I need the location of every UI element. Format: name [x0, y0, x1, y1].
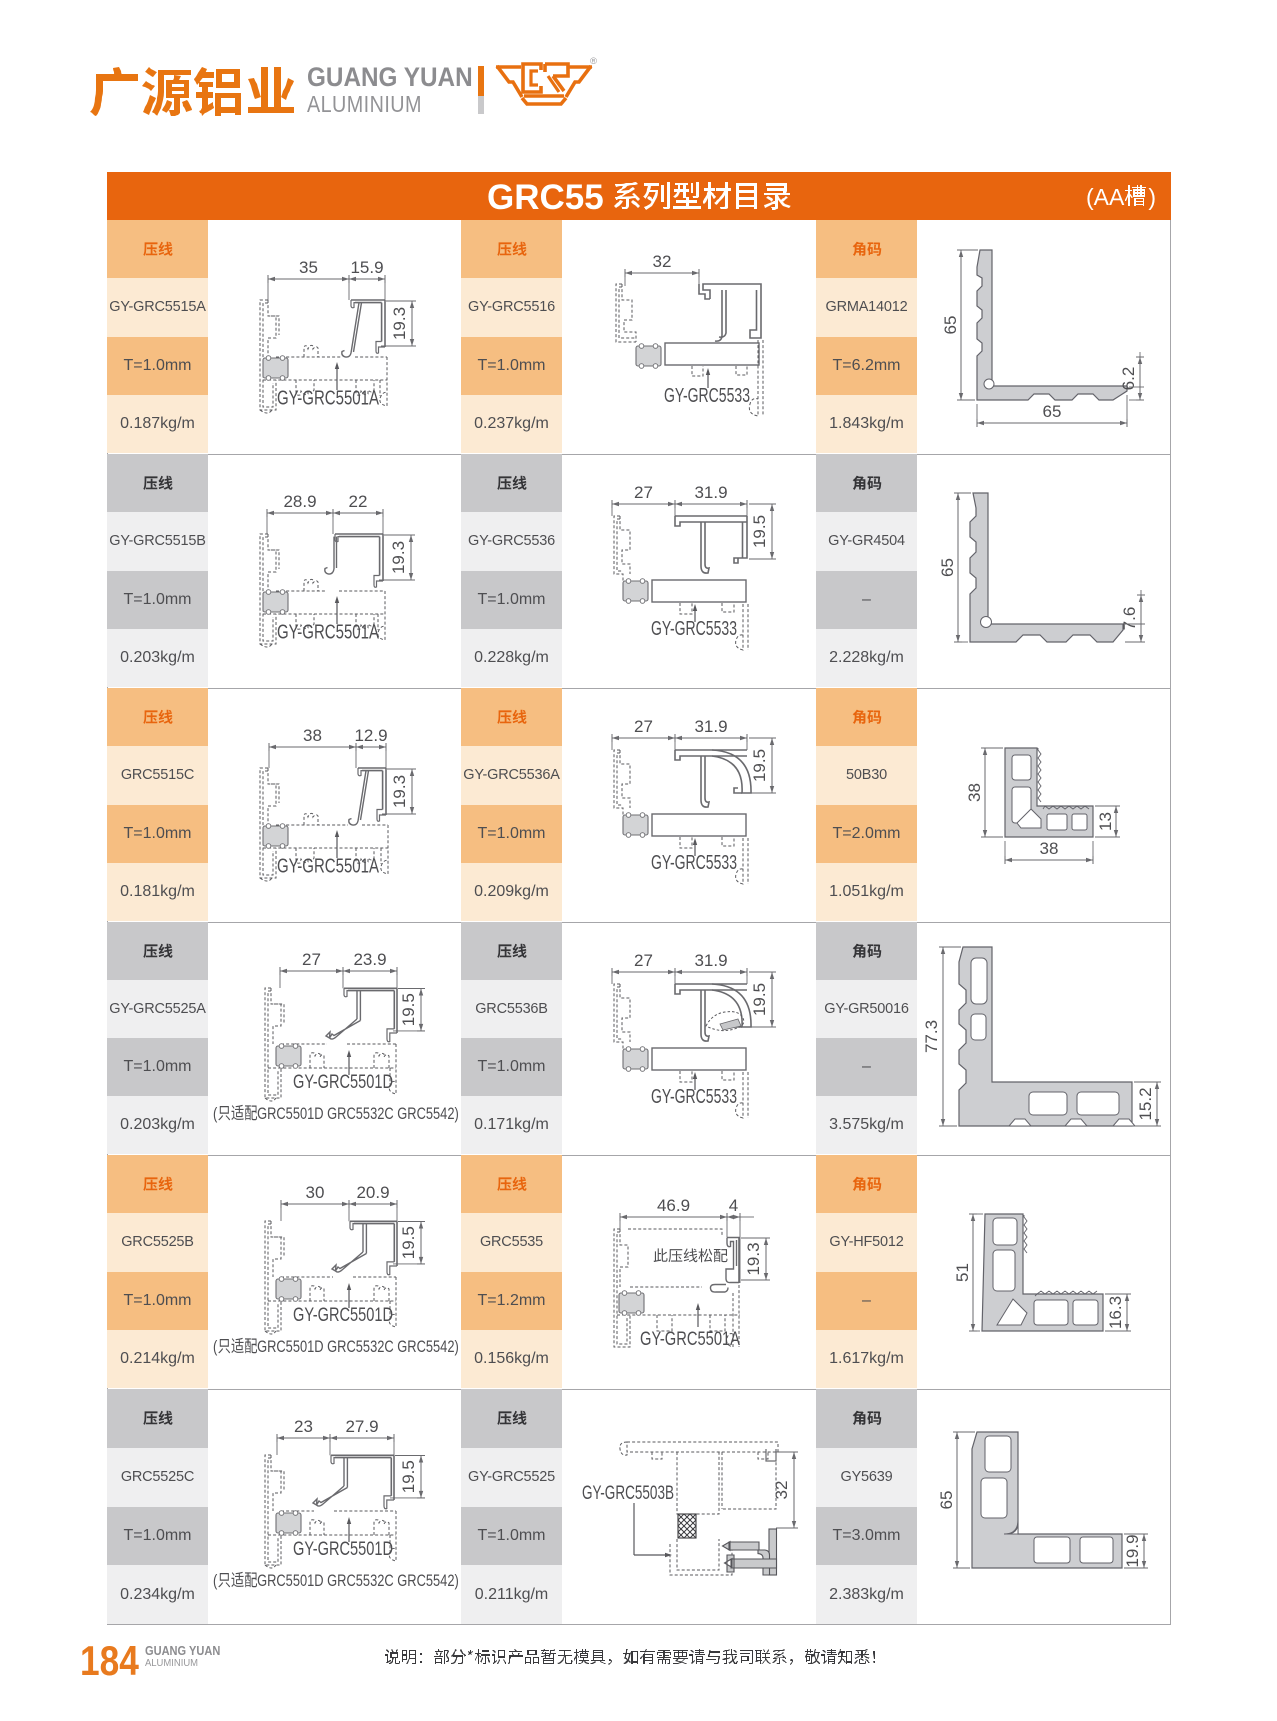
svg-text:27: 27 [634, 483, 653, 502]
svg-text:65: 65 [941, 316, 960, 335]
svg-text:30: 30 [306, 1183, 325, 1202]
svg-text:13: 13 [1096, 812, 1115, 831]
svg-text:38: 38 [965, 783, 984, 802]
svg-text:GY-GRC5501A: GY-GRC5501A [277, 622, 379, 644]
svg-text:GY-GRC5501A: GY-GRC5501A [640, 1329, 740, 1350]
svg-text:GY-GRC5503B: GY-GRC5503B [582, 1483, 674, 1504]
svg-text:23.9: 23.9 [353, 950, 386, 969]
svg-text:22: 22 [349, 492, 368, 511]
svg-text:®: ® [590, 57, 597, 67]
svg-text:GY-GRC5533: GY-GRC5533 [651, 1086, 737, 1108]
svg-text:GY-GRC5501D: GY-GRC5501D [293, 1539, 393, 1560]
svg-text:28.9: 28.9 [283, 492, 316, 511]
svg-text:15.9: 15.9 [350, 258, 383, 277]
svg-text:38: 38 [303, 726, 322, 745]
svg-text:16.3: 16.3 [1106, 1296, 1125, 1329]
svg-text:GY-GRC5501A: GY-GRC5501A [277, 388, 379, 410]
svg-text:27: 27 [634, 951, 653, 970]
svg-text:23: 23 [294, 1417, 313, 1436]
svg-text:19.3: 19.3 [744, 1242, 763, 1275]
svg-text:GY-GRC5501A: GY-GRC5501A [277, 856, 379, 878]
svg-text:27: 27 [634, 717, 653, 736]
svg-text:19.5: 19.5 [399, 1226, 418, 1259]
svg-text:46.9: 46.9 [657, 1196, 690, 1215]
svg-text:GY-GRC5501D: GY-GRC5501D [293, 1072, 393, 1093]
svg-text:15.2: 15.2 [1136, 1087, 1155, 1120]
svg-text:51: 51 [953, 1263, 972, 1282]
svg-text:20.9: 20.9 [356, 1183, 389, 1202]
svg-text:GY-GRC5501D: GY-GRC5501D [293, 1305, 393, 1326]
svg-text:GY-GRC5533: GY-GRC5533 [651, 852, 737, 874]
svg-text:77.3: 77.3 [922, 1020, 941, 1053]
svg-text:19.9: 19.9 [1123, 1534, 1142, 1567]
svg-text:31.9: 31.9 [694, 951, 727, 970]
svg-text:19.3: 19.3 [389, 541, 408, 574]
svg-text:GY-GRC5533: GY-GRC5533 [664, 385, 750, 407]
svg-text:4: 4 [729, 1196, 738, 1215]
svg-text:19.5: 19.5 [750, 983, 769, 1016]
svg-text:35: 35 [299, 258, 318, 277]
svg-text:27: 27 [302, 950, 321, 969]
svg-text:65: 65 [1043, 402, 1062, 421]
svg-text:32: 32 [653, 252, 672, 271]
svg-text:12.9: 12.9 [354, 726, 387, 745]
svg-text:19.5: 19.5 [750, 749, 769, 782]
svg-text:65: 65 [938, 558, 957, 577]
svg-text:27.9: 27.9 [345, 1417, 378, 1436]
svg-text:19.3: 19.3 [390, 775, 409, 808]
svg-text:GY-GRC5533: GY-GRC5533 [651, 618, 737, 640]
svg-text:38: 38 [1040, 839, 1059, 858]
svg-text:19.5: 19.5 [399, 993, 418, 1026]
svg-text:19.3: 19.3 [390, 307, 409, 340]
svg-text:65: 65 [937, 1491, 956, 1510]
svg-text:31.9: 31.9 [694, 717, 727, 736]
svg-text:31.9: 31.9 [694, 483, 727, 502]
svg-text:19.5: 19.5 [399, 1460, 418, 1493]
svg-text:32: 32 [772, 1481, 791, 1500]
svg-text:7.6: 7.6 [1120, 607, 1139, 631]
svg-text:19.5: 19.5 [750, 515, 769, 548]
